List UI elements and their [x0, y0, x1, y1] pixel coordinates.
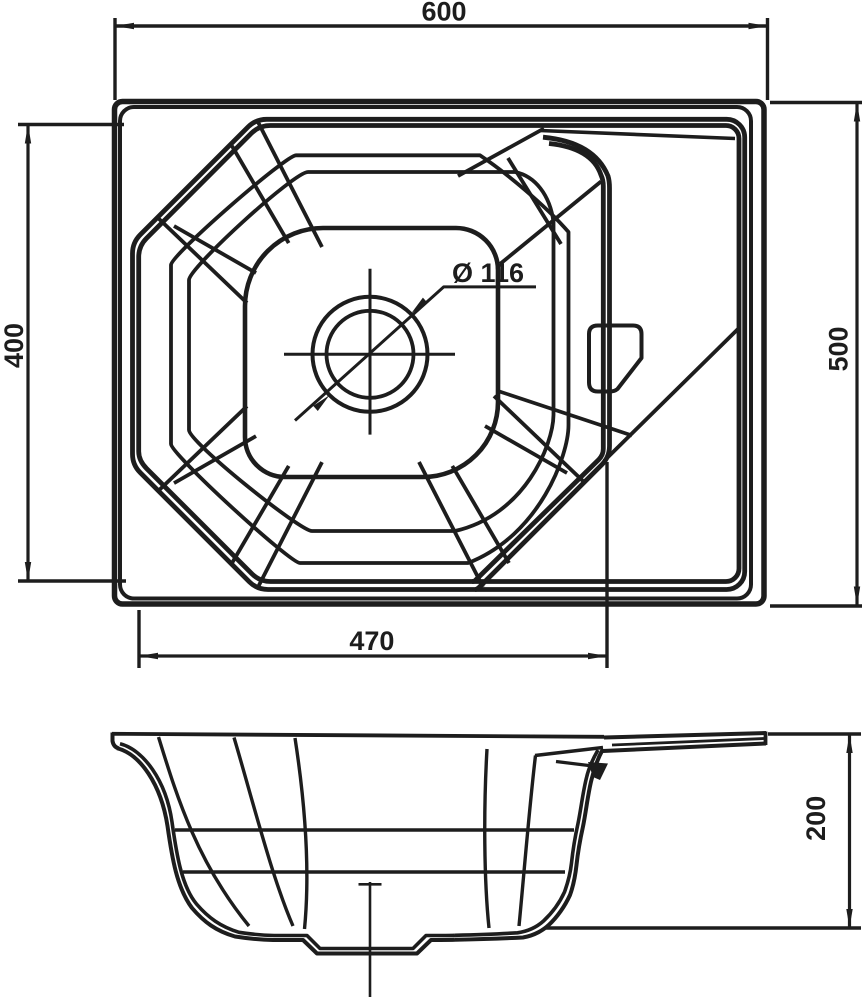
- svg-text:500: 500: [824, 326, 854, 371]
- svg-text:400: 400: [0, 323, 29, 368]
- svg-text:Ø 116: Ø 116: [452, 258, 524, 288]
- svg-text:600: 600: [421, 0, 466, 27]
- svg-text:200: 200: [801, 796, 831, 841]
- svg-text:470: 470: [349, 626, 394, 656]
